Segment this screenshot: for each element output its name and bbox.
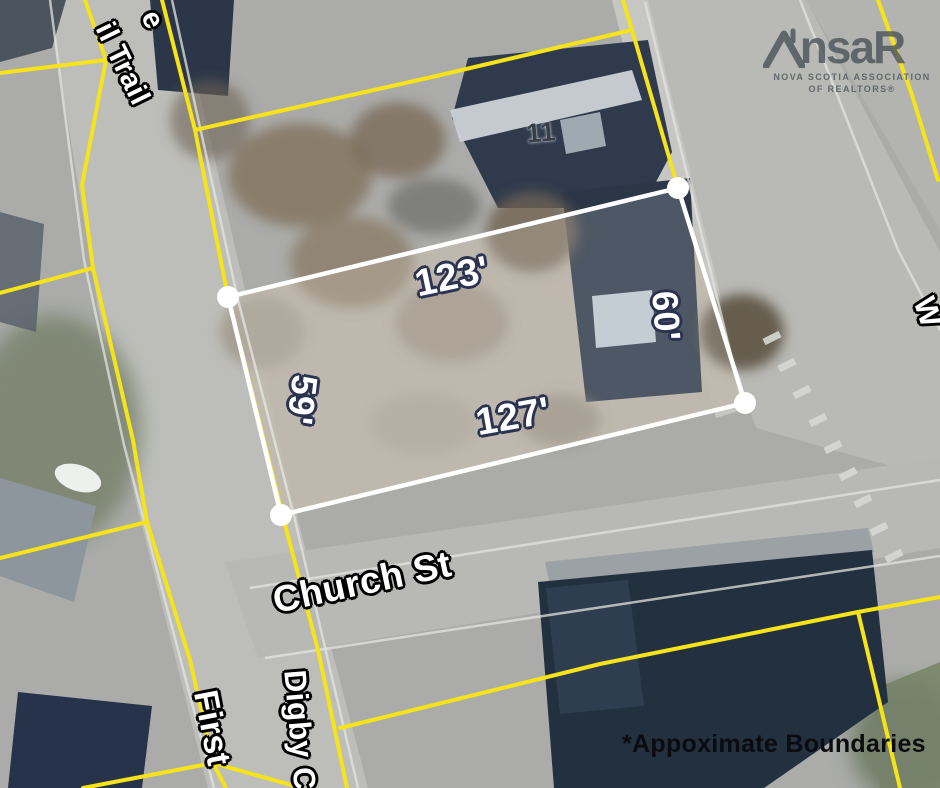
approximate-boundaries-note: *Appoximate Boundaries: [622, 730, 926, 759]
aerial-map: 123' 60' 127' 59' 11 Church St Digby C F…: [0, 0, 940, 788]
map-graphics: [0, 0, 940, 788]
boundary-corner-marker: [217, 286, 239, 308]
nsaar-logo: ns aR NOVA SCOTIA ASSOCIATION OF REALTOR…: [762, 28, 940, 95]
house-number-label: 11: [525, 118, 557, 147]
logo-letters-left: ns: [800, 28, 850, 67]
logo-tagline: NOVA SCOTIA ASSOCIATION OF REALTORS®: [762, 71, 940, 95]
boundary-corner-marker: [270, 504, 292, 526]
measurement-left: 59': [281, 373, 323, 427]
boundary-corner-marker: [734, 392, 756, 414]
house-roof-icon: [763, 28, 805, 68]
logo-letters-right: aR: [849, 28, 904, 67]
boundary-corner-marker: [667, 177, 689, 199]
measurement-right: 60': [646, 290, 685, 342]
